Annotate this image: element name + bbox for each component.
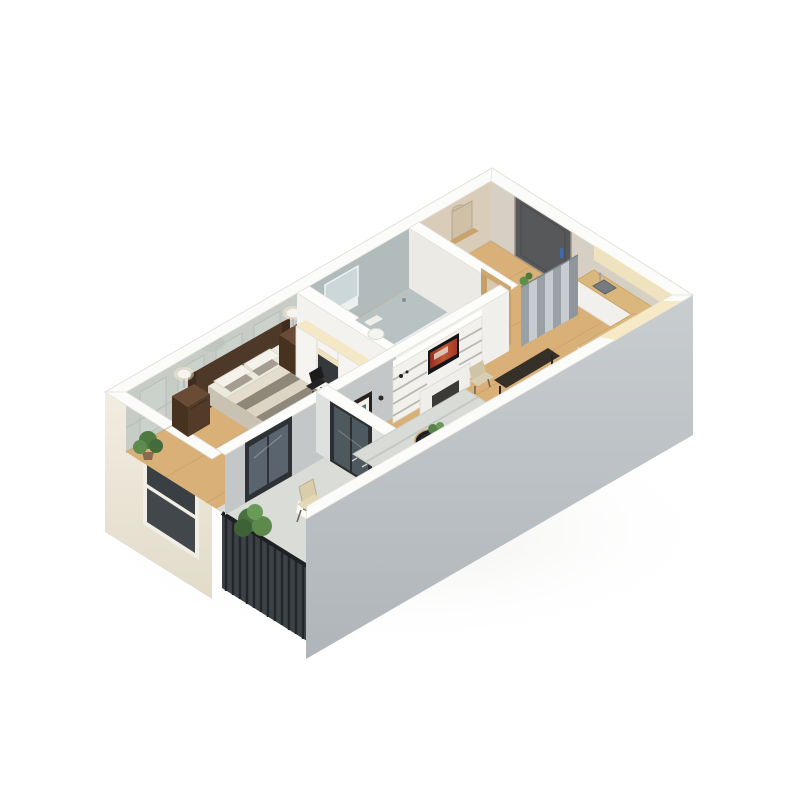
wall-hook-right — [379, 396, 384, 401]
door-handle — [560, 248, 564, 258]
floor-plan-render: 3D isometric floor plan render of a one-… — [0, 0, 800, 800]
shelf-decor — [399, 374, 403, 378]
lamp-shade — [177, 369, 191, 379]
floor-plan-stage: 3D isometric floor plan render of a one-… — [0, 0, 800, 800]
shelf-decor — [406, 371, 409, 374]
plant-pot — [142, 452, 154, 460]
